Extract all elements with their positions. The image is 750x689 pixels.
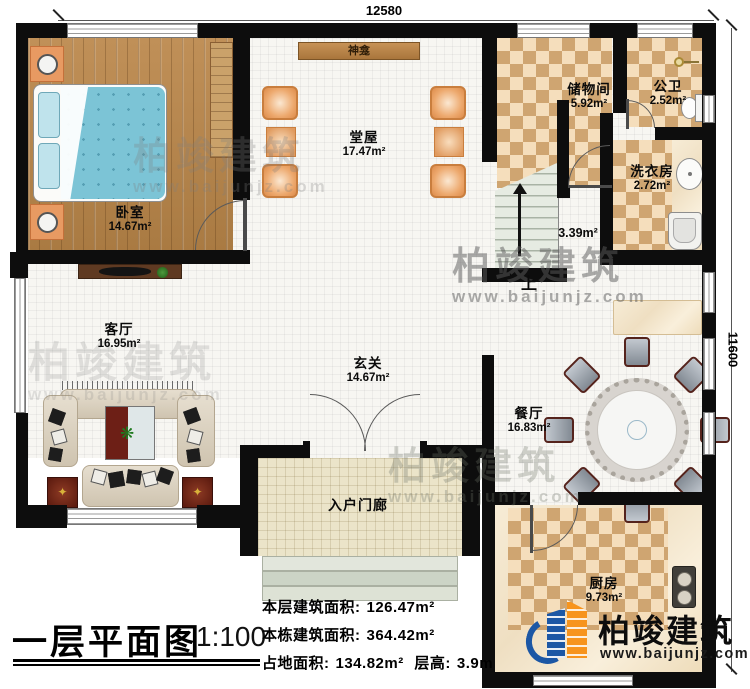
wall	[655, 127, 702, 140]
title-rule	[13, 664, 260, 666]
room-label-bathroom: 公卫 2.52m²	[636, 79, 700, 108]
stairs-arrow-head	[513, 183, 527, 194]
title-rule	[13, 659, 260, 662]
window	[703, 272, 715, 313]
hall-side-table	[266, 127, 296, 157]
wall	[590, 23, 637, 38]
wall	[600, 250, 716, 265]
lamp-icon	[37, 212, 58, 233]
wall	[495, 492, 530, 505]
shrine: 神龛	[298, 42, 420, 60]
wall	[240, 458, 258, 556]
stairs-up-label: 上	[515, 276, 543, 294]
logo-building-blue	[547, 608, 565, 658]
shower-icon	[674, 57, 684, 67]
window	[67, 508, 197, 525]
pillow	[108, 471, 125, 488]
dimension-line-top	[58, 20, 714, 21]
window	[14, 278, 26, 413]
dining-chair	[624, 337, 650, 367]
pillow	[38, 143, 60, 189]
stat-value: 3.9m	[457, 655, 493, 672]
door-leaf	[530, 505, 533, 553]
plant-icon: ❋	[120, 424, 134, 444]
pillow	[126, 469, 142, 485]
window	[67, 23, 198, 38]
burner-icon	[677, 572, 692, 587]
nightstand	[30, 46, 64, 82]
floor-plan: 神龛 ❋ ✦ ✦	[0, 0, 750, 689]
stat-label: 层高:	[414, 655, 451, 672]
bed	[33, 84, 167, 202]
tv-icon	[99, 267, 151, 276]
shrine-label: 神龛	[348, 45, 370, 57]
window	[703, 338, 715, 390]
door-post	[303, 441, 310, 458]
wardrobe	[210, 42, 233, 158]
hall-chair	[262, 86, 298, 120]
tv-cabinet	[78, 264, 182, 279]
room-label-bedroom: 卧室 14.67m²	[92, 205, 168, 234]
pillow	[48, 447, 63, 462]
stat-value: 364.42m²	[367, 627, 435, 644]
window	[533, 675, 633, 686]
dimension-height: 11600	[726, 320, 741, 380]
plan-scale: 1:100	[196, 621, 266, 653]
pillow	[38, 92, 60, 138]
door-post	[420, 441, 427, 458]
stat-row: 本层建筑面积:126.47m²	[262, 596, 499, 617]
stat-row: 本栋建筑面积:364.42m²	[262, 624, 499, 645]
stair-area-label: 3.39m²	[546, 226, 610, 240]
stat-label: 本栋建筑面积:	[262, 627, 361, 644]
plant-icon	[157, 267, 168, 278]
stat-value: 126.47m²	[367, 599, 435, 616]
porch-step	[262, 556, 458, 571]
room-label-hall: 堂屋 17.47m²	[322, 130, 406, 159]
sideboard	[613, 300, 702, 335]
end-table: ✦	[47, 477, 78, 508]
room-label-laundry: 洗衣房 2.72m²	[610, 164, 694, 193]
porch-step	[262, 571, 458, 586]
pillow	[186, 448, 201, 463]
logo-building-orange	[567, 600, 587, 658]
hall-chair	[262, 164, 298, 198]
lazy-susan	[627, 420, 647, 440]
wall	[240, 445, 305, 458]
wall	[557, 100, 569, 185]
stat-label: 本层建筑面积:	[262, 599, 361, 616]
hall-side-table	[434, 127, 464, 157]
window	[637, 23, 693, 38]
wall	[482, 38, 497, 162]
coffee-table: ❋	[105, 406, 155, 460]
lamp-icon	[37, 54, 58, 75]
room-label-foyer: 玄关 14.67m²	[336, 356, 400, 385]
window	[703, 95, 715, 123]
company-website: www.baijunjz.com	[600, 646, 749, 662]
room-label-storage: 储物间 5.92m²	[551, 82, 627, 111]
window	[517, 23, 590, 38]
burner-icon	[677, 590, 692, 605]
wall	[482, 355, 494, 457]
nightstand	[30, 204, 64, 240]
room-label-dining: 餐厅 16.83m²	[496, 406, 562, 435]
room-label-living: 客厅 16.95m²	[86, 322, 152, 351]
wall	[462, 458, 480, 556]
door-leaf	[568, 185, 612, 188]
washer-drum	[673, 218, 696, 243]
wall	[16, 505, 67, 528]
wall	[425, 445, 480, 458]
wall	[16, 250, 250, 264]
wall	[233, 38, 250, 200]
room-label-porch: 入户门廊	[308, 497, 408, 513]
wall	[198, 23, 517, 38]
window	[703, 412, 715, 455]
company-logo-icon	[526, 596, 596, 668]
door-leaf	[243, 198, 247, 251]
stove-icon	[672, 566, 696, 608]
hall-chair	[430, 164, 466, 198]
shower-arm	[684, 61, 699, 63]
hall-chair	[430, 86, 466, 120]
wall	[16, 23, 28, 256]
stat-label: 占地面积:	[262, 655, 330, 672]
wall	[578, 492, 702, 505]
end-table: ✦	[182, 477, 213, 508]
stat-value: 134.82m²	[336, 655, 404, 672]
stairs-arrow-shaft	[518, 192, 521, 256]
plan-title: 一层平面图	[12, 614, 202, 665]
stats-block: 本层建筑面积:126.47m² 本栋建筑面积:364.42m² 占地面积:134…	[262, 596, 499, 680]
dimension-width: 12580	[352, 3, 416, 18]
stat-row: 占地面积:134.82m² 层高:3.9m	[262, 652, 499, 673]
washing-machine	[668, 212, 702, 250]
